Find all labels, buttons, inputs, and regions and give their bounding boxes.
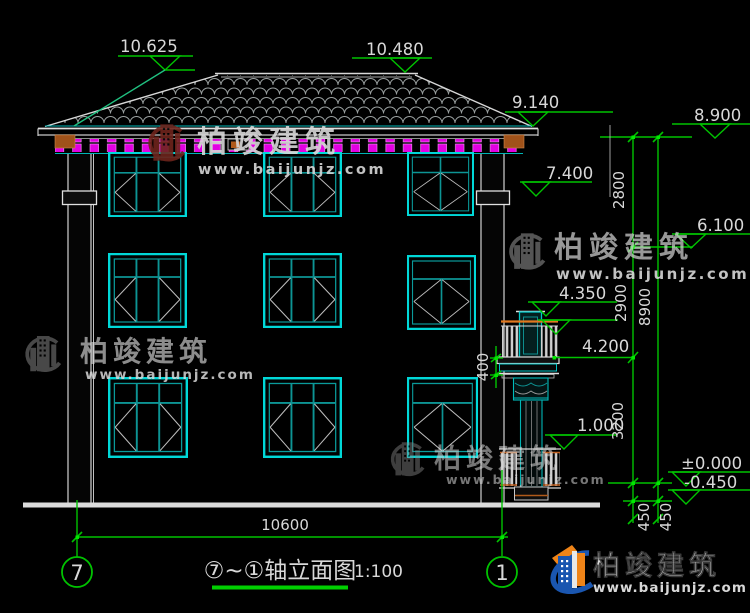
- logo-tower: [558, 556, 572, 590]
- roof-tile-hatch: [45, 75, 532, 127]
- window-1f-middle: [264, 378, 341, 457]
- left-pilaster-cap: [63, 191, 97, 205]
- balcony-door: [520, 312, 542, 358]
- title-underline: [212, 586, 348, 590]
- watermark-left: 柏竣建筑 www.baijunjz.com: [27, 335, 255, 383]
- logo-brand: 柏竣建筑: [593, 550, 721, 582]
- dim-label: 2900: [612, 284, 630, 322]
- window-2f-middle: [264, 254, 341, 327]
- watermark-icon: [511, 233, 544, 269]
- elevation-label: ±0.000: [681, 454, 742, 473]
- dim-label: 3200: [609, 402, 627, 440]
- corinthian-capital: [514, 378, 549, 400]
- watermark-brand: 柏竣建筑: [554, 230, 694, 264]
- watermark-url: www.baijunjz.com: [198, 162, 386, 178]
- elevation-drawing: 10.625 10.480 9.140 8.900 7.400 6.100 4.…: [0, 0, 750, 613]
- window-2f-right: [408, 256, 475, 329]
- windows: [109, 153, 477, 457]
- watermark-right: 柏竣建筑 www.baijunjz.com: [511, 230, 749, 283]
- drawing-title: ⑦~①轴立面图: [204, 558, 357, 584]
- watermark-icon: [150, 124, 183, 160]
- logo-url: www.baijunjz.com: [593, 580, 747, 596]
- elevation-label: 6.100: [697, 216, 744, 235]
- drawing-scale: 1:100: [354, 562, 403, 582]
- eave-corbel-right: [504, 135, 524, 148]
- dim-label: 450: [657, 503, 675, 532]
- balcony-slab: [497, 357, 559, 364]
- dim-label: 450: [635, 503, 653, 532]
- watermark-brand: 柏竣建筑: [197, 125, 341, 160]
- balcony-balusters-left: [502, 327, 519, 358]
- elevation-label: 10.480: [366, 40, 424, 59]
- axis-and-title: 7 1 ⑦~①轴立面图 1:100: [62, 557, 517, 590]
- watermark-url: www.baijunjz.com: [85, 367, 255, 383]
- watermark-url: www.baijunjz.com: [556, 265, 749, 283]
- company-logo: 柏竣建筑 www.baijunjz.com: [552, 545, 747, 596]
- elevation-label: -0.450: [684, 473, 737, 492]
- column-base: [515, 487, 549, 500]
- elevation-label: 8.900: [694, 106, 741, 125]
- watermark-brand: 柏竣建筑: [80, 335, 212, 368]
- watermark-url: www.baijunjz.com: [446, 472, 606, 487]
- ground-line: [23, 503, 600, 508]
- dim-label: 2800: [610, 171, 628, 209]
- watermark-icon: [27, 336, 59, 371]
- elevation-label: 10.625: [120, 37, 178, 56]
- cad-canvas: 10.625 10.480 9.140 8.900 7.400 6.100 4.…: [0, 0, 750, 613]
- elevation-label: 4.350: [559, 284, 606, 303]
- balcony-balusters-right: [541, 327, 558, 358]
- watermark-icon: [393, 442, 423, 475]
- dim-label: 8900: [636, 288, 654, 326]
- window-2f-left: [109, 254, 186, 327]
- window-3f-left: [109, 153, 186, 216]
- watermark-bottom: 柏竣建筑 www.baijunjz.com: [393, 442, 606, 487]
- elevation-label: 4.200: [582, 337, 629, 356]
- window-3f-right: [408, 153, 473, 215]
- dim-label: 400: [474, 353, 492, 382]
- logo-slab: [577, 553, 585, 586]
- right-pilaster-cap: [477, 191, 510, 205]
- elevation-label: 7.400: [546, 164, 593, 183]
- axis-bubble-7-label: 7: [70, 561, 83, 585]
- eave-corbel-left: [55, 135, 75, 148]
- width-dim-label: 10600: [261, 516, 309, 534]
- window-1f-left: [109, 378, 187, 457]
- left-pilaster: [63, 154, 97, 503]
- axis-bubble-1-label: 1: [495, 561, 508, 585]
- watermark-brand: 柏竣建筑: [434, 443, 562, 475]
- elevation-label: 9.140: [512, 93, 559, 112]
